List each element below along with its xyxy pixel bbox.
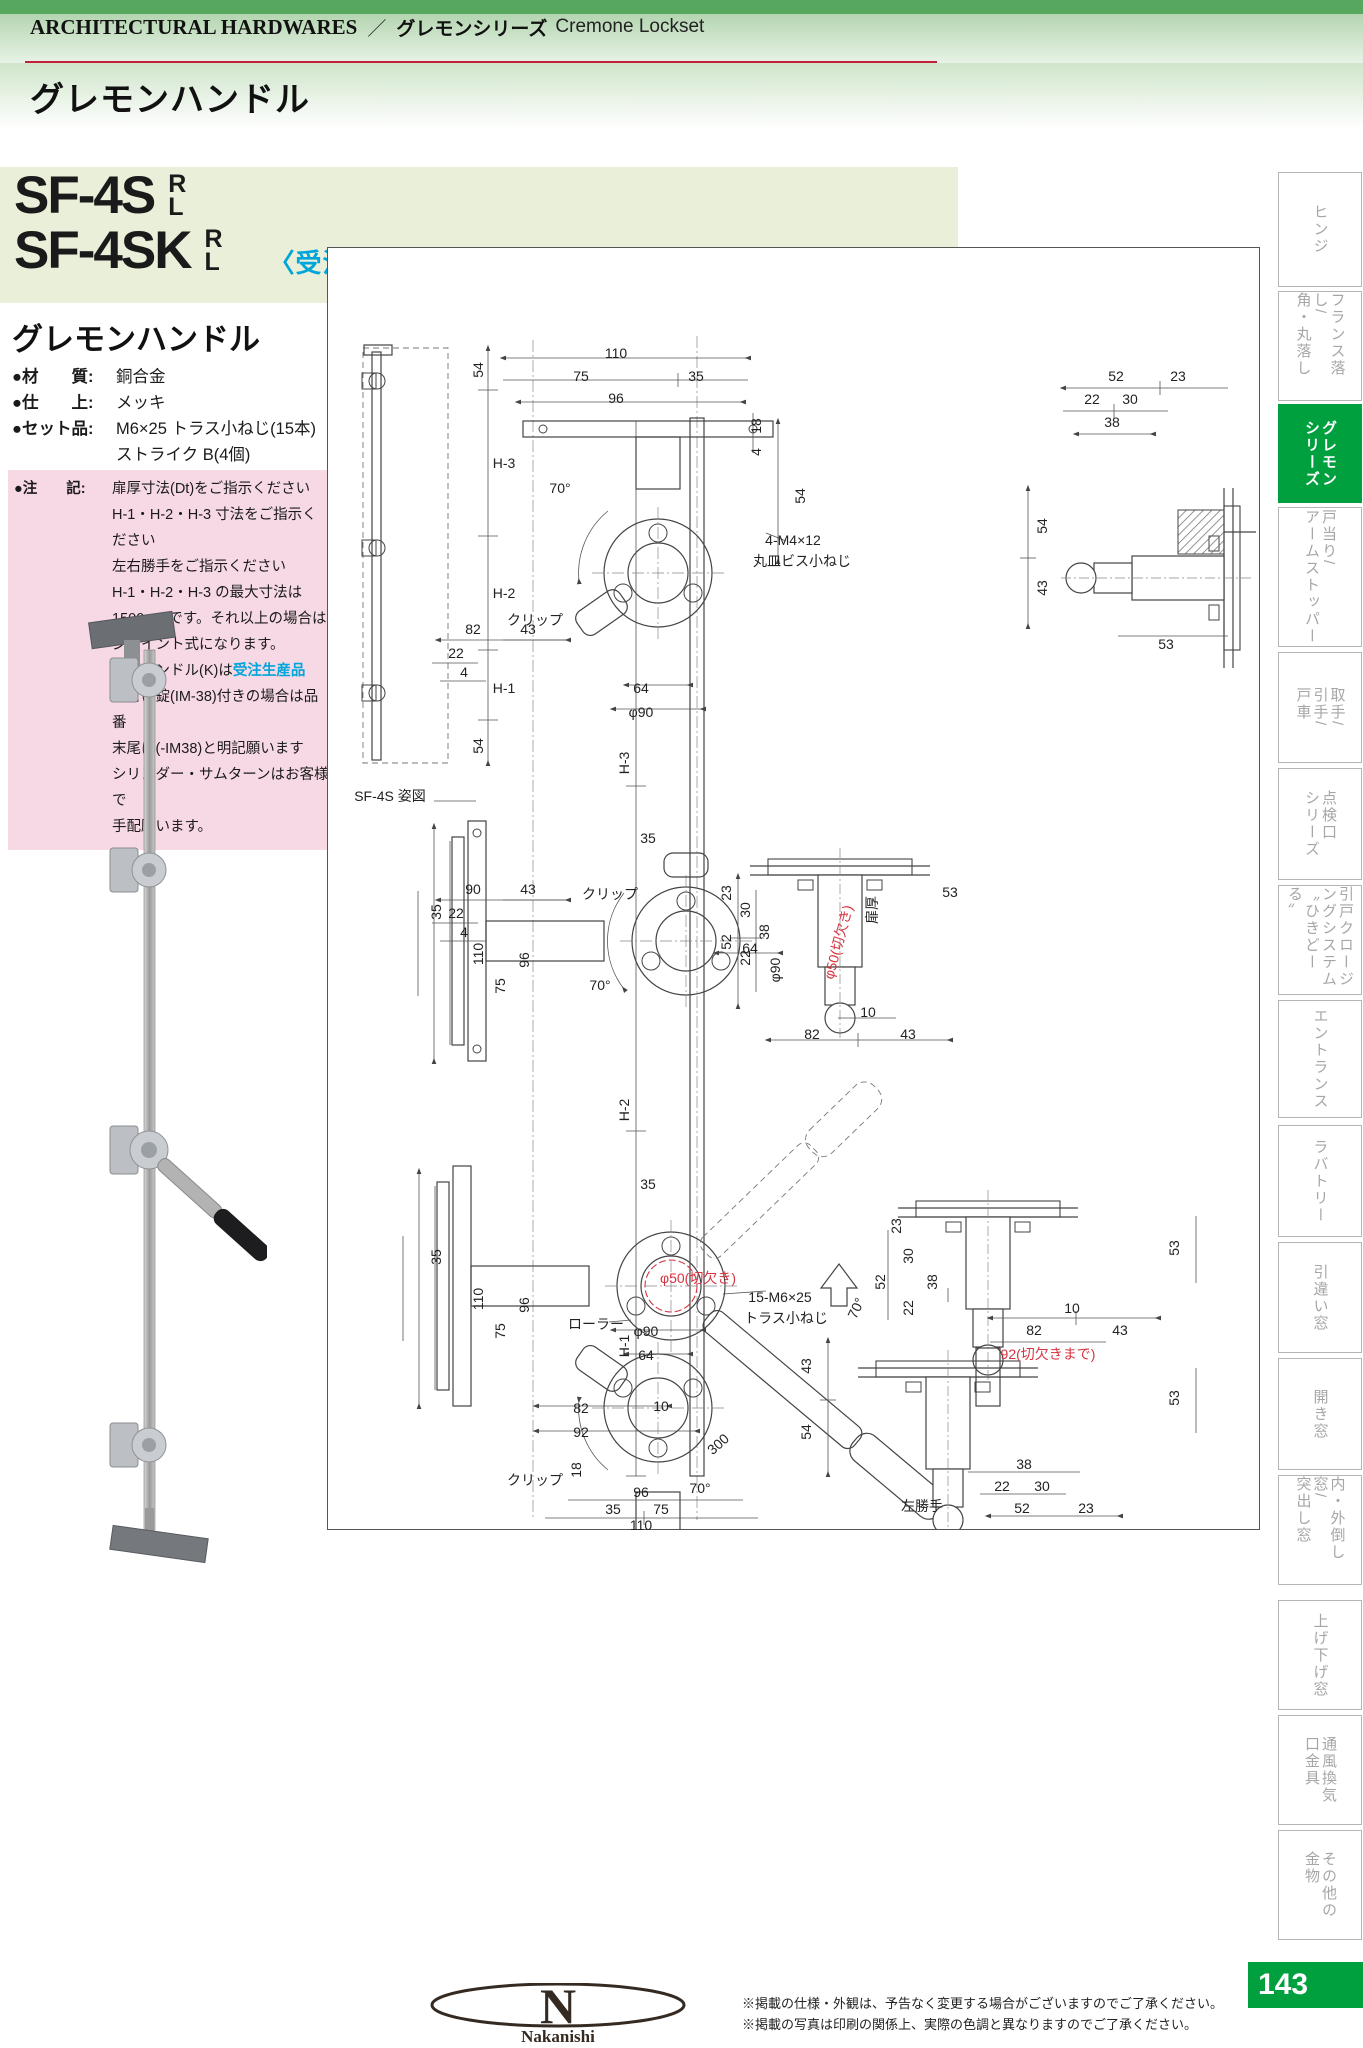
sidebar-tab-label: フランス落し/角・丸落し bbox=[1295, 292, 1346, 400]
spec-value: ストライク B(4個) bbox=[116, 442, 250, 468]
sidebar-tab-label: 開き窓 bbox=[1312, 1389, 1329, 1440]
footer-notes: ※掲載の仕様・外観は、予告なく変更する場合がございますのでご了承ください。 ※掲… bbox=[742, 1993, 1223, 2035]
dim-label: 96 bbox=[633, 1484, 649, 1500]
dim-label: 75 bbox=[653, 1501, 669, 1517]
sidebar-tab-label: ラバトリー bbox=[1312, 1139, 1329, 1224]
bracket-1 bbox=[110, 658, 166, 702]
dim-label: 70° bbox=[589, 977, 610, 993]
note-line: H-1・H-2・H-3 の最大寸法は bbox=[112, 580, 330, 606]
dim-label: 35 bbox=[428, 1249, 444, 1265]
dim-label: クリップ bbox=[507, 1470, 563, 1490]
dim-label: 23 bbox=[1078, 1500, 1094, 1516]
sidebar-tab-8[interactable]: エントランス bbox=[1278, 1000, 1362, 1118]
sidebar-tab-label: グレモンシリーズ bbox=[1303, 420, 1337, 488]
dim-label: 35 bbox=[688, 368, 704, 384]
dim-label: 52 bbox=[1014, 1500, 1030, 1516]
dim-label: 110 bbox=[470, 943, 486, 965]
dim-label: 22 bbox=[737, 950, 753, 966]
sidebar-tab-5[interactable]: 取手/引手/戸車 bbox=[1278, 652, 1362, 763]
dimension-labels: 54H-3H-2H-154SF-4S 姿図1107535961845470°4-… bbox=[328, 248, 1259, 1529]
dim-label: 30 bbox=[900, 1248, 916, 1264]
sidebar-tab-label: その他の金物 bbox=[1303, 1851, 1337, 1919]
sidebar-tab-14[interactable]: 通風換気口金具 bbox=[1278, 1715, 1362, 1825]
top-green-strip bbox=[0, 0, 1363, 14]
spec-key: ●セット品: bbox=[12, 416, 116, 442]
note-line: H-1・H-2・H-3 寸法をご指示ください bbox=[112, 502, 330, 554]
dim-label: 左勝手 bbox=[901, 1496, 943, 1516]
dim-label: 96 bbox=[516, 952, 532, 968]
dim-label: 4-M4×12 bbox=[765, 532, 821, 548]
header-series-en: Cremone Lockset bbox=[555, 16, 704, 38]
dim-label: 35 bbox=[605, 1501, 621, 1517]
dim-label: 18 bbox=[748, 418, 764, 434]
dim-label: 82 bbox=[465, 621, 481, 637]
header-series-jp: グレモンシリーズ bbox=[396, 14, 547, 41]
dim-label: 53 bbox=[1166, 1390, 1182, 1406]
sidebar-tab-label: 引戸クロージングシステム〝ひきどーる〟 bbox=[1286, 886, 1354, 994]
dim-label: 15-M6×25 bbox=[748, 1289, 811, 1305]
dim-label: 22 bbox=[994, 1478, 1010, 1494]
sidebar-tab-12[interactable]: 内・外倒し窓/突出し窓 bbox=[1278, 1475, 1362, 1585]
dim-label: 96 bbox=[516, 1297, 532, 1313]
spec-value: M6×25 トラス小ねじ(15本) bbox=[116, 416, 316, 442]
spec-row: ●材 質:銅合金 bbox=[12, 364, 324, 390]
sidebar-tab-15[interactable]: その他の金物 bbox=[1278, 1830, 1362, 1940]
dim-label: 43 bbox=[1112, 1322, 1128, 1338]
dim-label: 54 bbox=[470, 738, 486, 754]
dim-label: 22 bbox=[448, 905, 464, 921]
page-number-badge: 143 bbox=[1248, 1962, 1363, 2008]
dim-label: 54 bbox=[792, 488, 808, 504]
dim-label: 38 bbox=[1104, 414, 1120, 430]
dim-label: H-2 bbox=[493, 585, 516, 601]
dim-label: ローラー bbox=[568, 1314, 624, 1334]
sidebar-tab-7[interactable]: 引戸クロージングシステム〝ひきどーる〟 bbox=[1278, 885, 1362, 995]
note-key: ●注 記: bbox=[14, 476, 86, 502]
dim-label: 54 bbox=[470, 362, 486, 378]
dim-label: 22 bbox=[448, 645, 464, 661]
dim-label: 70° bbox=[844, 1295, 867, 1321]
dim-label: H-3 bbox=[616, 752, 632, 775]
dim-label: 75 bbox=[492, 978, 508, 994]
dim-label: 110 bbox=[605, 345, 627, 361]
spec-row: ●セット品:M6×25 トラス小ねじ(15本) bbox=[12, 416, 324, 442]
dim-label: H-1 bbox=[493, 680, 516, 696]
dim-label: φ50(切欠き) bbox=[819, 903, 858, 982]
dim-label: 43 bbox=[900, 1026, 916, 1042]
sidebar-tab-label: 通風換気口金具 bbox=[1303, 1736, 1337, 1804]
sidebar-tab-4[interactable]: 戸当り/アームストッパー bbox=[1278, 507, 1362, 647]
dim-label: 300 bbox=[704, 1430, 732, 1458]
spec-key: ●材 質: bbox=[12, 364, 116, 390]
handle-grip bbox=[210, 1206, 267, 1265]
sidebar-tab-label: 取手/引手/戸車 bbox=[1295, 687, 1346, 727]
technical-drawing-frame: .p{fill:none;stroke:#444;stroke-width:1.… bbox=[327, 247, 1260, 1530]
dim-label: 82 bbox=[804, 1026, 820, 1042]
dim-label: 82 bbox=[1026, 1322, 1042, 1338]
sidebar-tab-label: 点検口シリーズ bbox=[1303, 790, 1337, 858]
dim-label: 70° bbox=[689, 1480, 710, 1496]
sidebar-tab-label: 引違い窓 bbox=[1312, 1264, 1329, 1332]
dim-label: 23 bbox=[1170, 368, 1186, 384]
sidebar-tab-label: エントランス bbox=[1312, 1008, 1329, 1110]
dim-label: 22 bbox=[900, 1300, 916, 1316]
dim-label: 4 bbox=[460, 924, 468, 940]
handing-l: L bbox=[204, 251, 222, 274]
sidebar-tab-11[interactable]: 開き窓 bbox=[1278, 1358, 1362, 1470]
dim-label: 92 bbox=[573, 1424, 589, 1440]
dim-label: 35 bbox=[640, 1176, 656, 1192]
sidebar-tab-10[interactable]: 引違い窓 bbox=[1278, 1242, 1362, 1353]
dim-label: 30 bbox=[737, 902, 753, 918]
dim-label: H-3 bbox=[493, 455, 516, 471]
dim-label: 90 bbox=[465, 881, 481, 897]
page-title: グレモンハンドル bbox=[30, 72, 310, 121]
sidebar-tab-13[interactable]: 上げ下げ窓 bbox=[1278, 1600, 1362, 1710]
dim-label: 64 bbox=[633, 680, 649, 696]
sidebar-tab-3[interactable]: グレモンシリーズ bbox=[1278, 404, 1362, 503]
dim-label: 丸皿ビス小ねじ bbox=[753, 551, 851, 571]
bottom-plate bbox=[110, 1508, 208, 1563]
bracket-4 bbox=[110, 1423, 166, 1467]
dim-label: 22 bbox=[1084, 391, 1100, 407]
dim-label: 52 bbox=[718, 934, 734, 950]
nakanishi-logo: N Nakanishi bbox=[428, 1983, 693, 2045]
spec-value: メッキ bbox=[116, 390, 166, 416]
dim-label: 110 bbox=[470, 1288, 486, 1310]
spec-key: ●仕 上: bbox=[12, 390, 116, 416]
dim-label: SF-4S 姿図 bbox=[354, 786, 426, 806]
dim-label: 53 bbox=[1166, 1240, 1182, 1256]
model-sf4sk-handing: R L bbox=[204, 228, 222, 274]
dim-label: 53 bbox=[942, 884, 958, 900]
dim-label: 70° bbox=[549, 480, 570, 496]
dim-label: 23 bbox=[888, 1218, 904, 1234]
dim-label: 30 bbox=[1034, 1478, 1050, 1494]
note-line: 左右勝手をご指示ください bbox=[112, 554, 330, 580]
sidebar-tab-label: 内・外倒し窓/突出し窓 bbox=[1295, 1476, 1346, 1584]
dim-label: 10 bbox=[1064, 1300, 1080, 1316]
dim-label: 54 bbox=[1034, 518, 1050, 534]
bracket-3-with-handle bbox=[110, 1126, 267, 1264]
footer-note-line: ※掲載の写真は印刷の関係上、実際の色調と異なりますのでご了承ください。 bbox=[742, 2014, 1223, 2035]
dim-label: 92(切欠きまで) bbox=[1001, 1344, 1096, 1364]
dim-label: φ90 bbox=[634, 1323, 659, 1339]
spec-list: ●材 質:銅合金●仕 上:メッキ●セット品:M6×25 トラス小ねじ(15本)ス… bbox=[12, 364, 324, 468]
dim-label: φ50(切欠き) bbox=[660, 1268, 736, 1288]
dim-label: 10 bbox=[653, 1398, 669, 1414]
dim-label: 35 bbox=[428, 904, 444, 920]
sidebar-tab-6[interactable]: 点検口シリーズ bbox=[1278, 768, 1362, 880]
dim-label: 38 bbox=[756, 924, 772, 940]
dim-label: φ90 bbox=[767, 958, 783, 983]
sidebar-tab-label: 上げ下げ窓 bbox=[1312, 1613, 1329, 1698]
dim-label: 64 bbox=[638, 1347, 654, 1363]
dim-label: クリップ bbox=[582, 884, 638, 904]
dim-label: 52 bbox=[1108, 368, 1124, 384]
dim-label: トラス小ねじ bbox=[744, 1308, 828, 1328]
header-separator: ／ bbox=[367, 14, 386, 41]
dim-label: 30 bbox=[1122, 391, 1138, 407]
dim-label: 43 bbox=[798, 1358, 814, 1374]
spec-key bbox=[12, 442, 116, 468]
rod bbox=[144, 650, 155, 1530]
dim-label: 10 bbox=[860, 1004, 876, 1020]
sidebar-tab-9[interactable]: ラバトリー bbox=[1278, 1125, 1362, 1237]
dim-label: 扉厚 bbox=[862, 896, 882, 924]
dim-label: H-1 bbox=[616, 1335, 632, 1358]
note-line: 扉厚寸法(Dt)をご指示ください bbox=[112, 476, 330, 502]
footer-note-line: ※掲載の仕様・外観は、予告なく変更する場合がございますのでご了承ください。 bbox=[742, 1993, 1223, 2014]
dim-label: 54 bbox=[798, 1424, 814, 1440]
dim-label: 43 bbox=[520, 621, 536, 637]
header-english-title: ARCHITECTURAL HARDWARES bbox=[30, 15, 357, 40]
dim-label: 52 bbox=[872, 1274, 888, 1290]
dim-label: 96 bbox=[608, 390, 624, 406]
dim-label: 4 bbox=[460, 664, 468, 680]
handing-l: L bbox=[168, 196, 186, 219]
dim-label: 75 bbox=[492, 1323, 508, 1339]
dim-label: 18 bbox=[568, 1462, 584, 1478]
model-sf4s-handing: R L bbox=[168, 173, 186, 219]
dim-label: 82 bbox=[573, 1400, 589, 1416]
sidebar-tab-label: ヒンジ bbox=[1312, 204, 1329, 255]
spec-row: ●仕 上:メッキ bbox=[12, 390, 324, 416]
dim-label: 110 bbox=[630, 1517, 652, 1533]
dim-label: 75 bbox=[573, 368, 589, 384]
sidebar-tab-label: 戸当り/アームストッパー bbox=[1303, 509, 1337, 645]
sidebar-tab-2[interactable]: フランス落し/角・丸落し bbox=[1278, 291, 1362, 401]
section-title: グレモンハンドル bbox=[12, 314, 260, 359]
model-number-sf4s: SF-4S bbox=[14, 169, 154, 222]
dim-label: 4 bbox=[748, 448, 764, 456]
dim-label: 38 bbox=[1016, 1456, 1032, 1472]
dim-label: 53 bbox=[1158, 636, 1174, 652]
dim-label: H-2 bbox=[616, 1099, 632, 1122]
model-number-sf4sk: SF-4SK bbox=[14, 224, 190, 277]
dim-label: 43 bbox=[520, 881, 536, 897]
dim-label: 35 bbox=[640, 830, 656, 846]
sidebar-tab-1[interactable]: ヒンジ bbox=[1278, 172, 1362, 287]
dim-label: 23 bbox=[718, 885, 734, 901]
spec-row: ストライク B(4個) bbox=[12, 442, 324, 468]
dim-label: 43 bbox=[1034, 580, 1050, 596]
dim-label: 38 bbox=[924, 1274, 940, 1290]
bracket-2 bbox=[110, 848, 166, 892]
dim-label: φ90 bbox=[629, 704, 654, 720]
header-band: ARCHITECTURAL HARDWARES ／ グレモンシリーズ Cremo… bbox=[0, 14, 1363, 64]
logo-name: Nakanishi bbox=[521, 2027, 595, 2045]
breadcrumb: ARCHITECTURAL HARDWARES ／ グレモンシリーズ Cremo… bbox=[0, 14, 1363, 40]
spec-value: 銅合金 bbox=[116, 364, 166, 390]
product-photo bbox=[52, 608, 267, 1573]
